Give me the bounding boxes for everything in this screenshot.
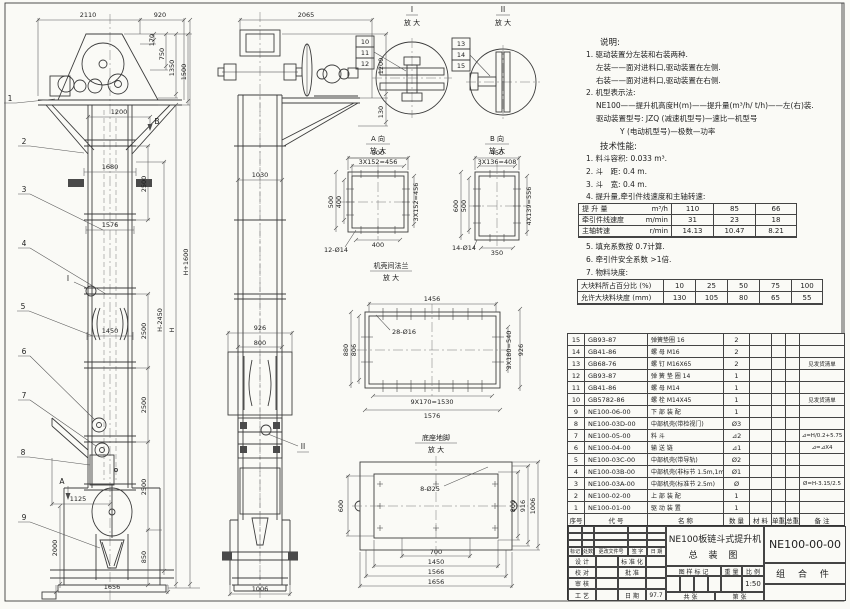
bom-code: NE100-03C-00 xyxy=(585,454,648,466)
detail-a-dim-400-left: 400 xyxy=(335,196,343,208)
side-dimensions: 2065 1200 130 1030 926 800 II 1006 xyxy=(226,11,388,596)
bom-unit-weight xyxy=(772,430,786,442)
front-dim-h: H xyxy=(168,327,176,332)
front-dim-170: 170 xyxy=(148,34,156,46)
bom-name: 中部机壳(非标节 1.5m,1m) xyxy=(648,466,724,478)
detail-b-dim-350: 350 xyxy=(491,249,503,257)
bom-unit-weight xyxy=(772,394,786,406)
bom-material xyxy=(750,346,772,358)
detail-ii-refs: 13 14 15 xyxy=(452,38,490,76)
bom-seq: 6 xyxy=(568,442,585,454)
note-line: 1. 驱动装置分左装和右装两种. xyxy=(586,49,844,62)
bom-total-weight xyxy=(786,418,800,430)
scale-value: 1:50 xyxy=(742,576,764,592)
bom-name: 中部机壳(带导轨) xyxy=(648,454,724,466)
bom-code: NE100-03B-00 xyxy=(585,466,648,478)
performance-line: 3. 斗 宽: 0.4 m. xyxy=(586,179,844,192)
side-dim-1006: 1006 xyxy=(252,585,269,593)
rev-cell xyxy=(594,540,628,547)
detail-flange-dim-1576: 1576 xyxy=(424,412,441,420)
front-dim-h-minus: H-2450 xyxy=(156,308,164,332)
bom-name: 螺 栓 M14X45 xyxy=(648,394,724,406)
weight-label: 重 量 xyxy=(721,566,742,576)
lump-value: 80 xyxy=(728,292,760,304)
bom-code: GB41-86 xyxy=(585,346,648,358)
detail-flange-dim-1456: 1456 xyxy=(424,295,441,303)
front-dim-1350: 1350 xyxy=(168,60,176,77)
lump-value: 65 xyxy=(760,292,792,304)
detail-flange-holes: 28-Ø16 xyxy=(392,328,416,336)
detail-base-dim-1450: 1450 xyxy=(428,558,445,566)
detail-a-dim-400-bottom: 400 xyxy=(372,241,384,249)
sig-process-label: 工 艺 xyxy=(568,589,596,601)
lift-value: 10.47 xyxy=(714,226,756,237)
bom-name: 中部机壳(标准节 2.5m) xyxy=(648,478,724,490)
detail-i-title: I xyxy=(411,5,413,14)
lift-label: 提 升 量 xyxy=(582,204,607,214)
front-dim-920: 920 xyxy=(154,11,166,19)
detail-a-dim-500-left: 500 xyxy=(327,196,335,208)
bom-remark: ⊿=H/0.2+5.75 xyxy=(800,430,845,442)
bom-total-weight xyxy=(786,346,800,358)
front-view-a-label: A xyxy=(59,477,65,486)
lump-value: 10 xyxy=(664,280,696,292)
bom-remark xyxy=(800,502,845,514)
stamp-cell xyxy=(680,576,694,592)
lift-value: 8.21 xyxy=(756,226,797,237)
drawing-sheet: 2110 920 170 750 1350 1500 1200 B 1680 1… xyxy=(0,0,850,609)
sig-cell xyxy=(596,578,618,589)
bom-remark xyxy=(800,490,845,502)
bom-qty: Ø xyxy=(724,478,750,490)
detail-a-title: A 向 xyxy=(371,134,385,143)
performance-block-2: 5. 填充系数按 0.7计算. 6. 牵引件安全系数 >1倍. 7. 物料块度: xyxy=(586,241,844,279)
bom-name: 料 斗 xyxy=(648,430,724,442)
detail-b-dim-556: 4X139=556 xyxy=(525,187,533,226)
bom-unit-weight xyxy=(772,478,786,490)
drawing-title-line2: 总 装 图 xyxy=(689,548,742,561)
sig-date-value: 97.7 xyxy=(646,589,666,601)
bom-unit-weight xyxy=(772,334,786,346)
bom-material xyxy=(750,334,772,346)
bom-remark: 见发货清单 xyxy=(800,394,845,406)
lift-capacity-table: 提 升 量 m³/h 110 85 66 牵引件线速度 m/min 31 23 … xyxy=(578,203,797,238)
rev-cell xyxy=(582,526,594,533)
sig-cell xyxy=(596,567,618,578)
bom-material xyxy=(750,382,772,394)
bom-name: 螺 钉 M16X65 xyxy=(648,358,724,370)
drawing-number: NE100-00-00 xyxy=(764,526,846,563)
bom-qty: 1 xyxy=(724,394,750,406)
performance-block: 技术性能: 1. 料斗容积: 0.033 m³. 2. 斗 距: 0.4 m. … xyxy=(586,140,844,204)
bom-remark: 见发货清单 xyxy=(800,358,845,370)
bom-name: 上 部 装 配 xyxy=(648,490,724,502)
bom-code: NE100-05-00 xyxy=(585,430,648,442)
drawing-title-line1: NE100板链斗式提升机 xyxy=(669,532,762,545)
front-dim-1576: 1576 xyxy=(102,221,119,229)
sig-design-label: 设 计 xyxy=(568,556,596,567)
balloon-9: 9 xyxy=(22,513,27,522)
sig-audit-label: 审 核 xyxy=(568,578,596,589)
detail-a-holes: 12-Ø14 xyxy=(324,246,348,254)
scale-label: 比 例 xyxy=(742,566,764,576)
detail-flange-dim-1530: 9X170=1530 xyxy=(411,398,454,406)
sig-cell xyxy=(646,556,666,567)
bom-seq: 7 xyxy=(568,430,585,442)
bom-remark xyxy=(800,454,845,466)
bom-seq: 3 xyxy=(568,478,585,490)
lift-value: 23 xyxy=(714,215,756,226)
bom-code: GB5782-86 xyxy=(585,394,648,406)
bom-seq: 9 xyxy=(568,406,585,418)
bom-remark xyxy=(800,346,845,358)
front-dim-1680: 1680 xyxy=(102,163,119,171)
bom-unit-weight xyxy=(772,490,786,502)
bom-remark xyxy=(800,370,845,382)
detail-b-dim-408: 3X136=408 xyxy=(478,158,517,166)
lift-value: 66 xyxy=(756,204,797,215)
detail-flange-dim-880: 880 xyxy=(342,344,350,356)
front-dim-1450: 1450 xyxy=(102,327,119,335)
balloon-2: 2 xyxy=(22,137,27,146)
rev-cell xyxy=(568,526,582,533)
rev-col-docno: 更改文件号 xyxy=(594,547,628,556)
bom-name: 输 送 链 xyxy=(648,442,724,454)
bom-remark xyxy=(800,334,845,346)
front-dim-1500: 1500 xyxy=(180,64,188,81)
bom-code: GB93-87 xyxy=(585,370,648,382)
rev-cell xyxy=(647,526,666,533)
lump-value: 25 xyxy=(696,280,728,292)
side-dim-800: 800 xyxy=(254,339,266,347)
detail-ii-title: II xyxy=(501,5,505,14)
bom-total-weight xyxy=(786,370,800,382)
front-dim-2500-1: 2500 xyxy=(140,176,148,193)
note-line: Y (电动机型号)—极数—功率 xyxy=(586,126,844,139)
side-dim-130: 130 xyxy=(377,106,385,118)
bom-remark xyxy=(800,418,845,430)
front-dim-1656: 1656 xyxy=(104,583,121,591)
bom-seq: 14 xyxy=(568,346,585,358)
sig-cell xyxy=(646,578,666,589)
bom-material xyxy=(750,454,772,466)
stamp-cell xyxy=(694,576,708,592)
bom-qty: 1 xyxy=(724,502,750,514)
ref-13: 13 xyxy=(457,40,465,48)
bom-total-weight xyxy=(786,358,800,370)
detail-b-dim-600: 600 xyxy=(452,200,460,212)
bom-material xyxy=(750,502,772,514)
bom-remark xyxy=(800,406,845,418)
balloon-8: 8 xyxy=(21,448,26,457)
bom-seq: 4 xyxy=(568,466,585,478)
lump-value: 100 xyxy=(792,280,823,292)
empty-cell xyxy=(764,584,846,601)
bom-total-weight xyxy=(786,442,800,454)
side-elevation-view: 2065 1200 130 1030 926 800 II 1006 xyxy=(218,11,388,600)
detail-b-view: B 向 放 大 450 3X136=408 600 500 4X139=556 … xyxy=(452,134,533,257)
detail-b-dim-450: 450 xyxy=(491,149,503,157)
sig-cell xyxy=(596,556,618,567)
lift-label: 牵引件线速度 xyxy=(582,215,624,225)
bom-code: NE100-02-00 xyxy=(585,490,648,502)
lump-value: 130 xyxy=(664,292,696,304)
lift-unit: m³/h xyxy=(652,205,668,213)
performance-line: 1. 料斗容积: 0.033 m³. xyxy=(586,153,844,166)
sig-date-label: 日 期 xyxy=(618,589,646,601)
ref-11: 11 xyxy=(361,49,369,57)
front-dimensions: 2110 920 170 750 1350 1500 1200 B 1680 1… xyxy=(36,11,200,594)
bom-seq: 13 xyxy=(568,358,585,370)
weight-value xyxy=(721,576,742,592)
balloon-1: 1 xyxy=(8,94,13,103)
bom-total-weight xyxy=(786,406,800,418)
detail-a-view: A 向 放 大 500 3X152=456 500 400 3X152=456 … xyxy=(324,134,420,254)
bom-name: 中部机壳(带检视门) xyxy=(648,418,724,430)
bom-name: 螺 母 M14 xyxy=(648,382,724,394)
bom-material xyxy=(750,478,772,490)
bom-total-weight xyxy=(786,490,800,502)
front-dim-1125: 1125 xyxy=(70,495,87,503)
detail-a-dim-500-top: 500 xyxy=(372,149,384,157)
bom-material xyxy=(750,418,772,430)
bom-unit-weight xyxy=(772,418,786,430)
bom-seq: 15 xyxy=(568,334,585,346)
bom-material xyxy=(750,394,772,406)
front-dim-1200: 1200 xyxy=(111,108,128,116)
rev-cell xyxy=(647,533,666,540)
side-dim-1030: 1030 xyxy=(252,171,269,179)
sig-check-label: 校 对 xyxy=(568,567,596,578)
bom-unit-weight xyxy=(772,382,786,394)
side-detail-ii-ref: II xyxy=(301,442,305,451)
performance-line: 7. 物料块度: xyxy=(586,267,844,280)
rev-col-count: 处数 xyxy=(582,547,594,556)
detail-base-zoom-label: 放 大 xyxy=(428,445,444,454)
front-view-b-label: B xyxy=(154,117,159,126)
balloon-5: 5 xyxy=(21,302,26,311)
rev-cell xyxy=(628,533,647,540)
bom-total-weight xyxy=(786,394,800,406)
drawing-title: NE100板链斗式提升机 总 装 图 xyxy=(666,526,764,566)
bom-name: 驱 动 装 置 xyxy=(648,502,724,514)
bom-remark xyxy=(800,466,845,478)
balloon-6: 6 xyxy=(22,347,27,356)
rev-cell xyxy=(594,526,628,533)
note-line: 右装——面对进料口,驱动装置在右侧. xyxy=(586,75,844,88)
note-line: 2. 机型表示法: xyxy=(586,87,844,100)
bom-qty: Ø3 xyxy=(724,418,750,430)
notes-block: 说明: 1. 驱动装置分左装和右装两种. 左装——面对进料口,驱动装置在左侧. … xyxy=(586,36,844,139)
bom-code: NE100-03A-00 xyxy=(585,478,648,490)
ref-12: 12 xyxy=(361,60,369,68)
rev-cell xyxy=(568,540,582,547)
bom-material xyxy=(750,370,772,382)
ref-15: 15 xyxy=(457,62,465,70)
rev-col-mark: 标记 xyxy=(568,547,582,556)
detail-flange-zoom-label: 放 大 xyxy=(383,273,399,282)
bom-total-weight xyxy=(786,334,800,346)
notes-heading: 说明: xyxy=(586,36,844,48)
detail-ii-zoom-label: 放 大 xyxy=(495,18,511,27)
bom-total-weight xyxy=(786,430,800,442)
detail-base-title: 底座地脚 xyxy=(422,433,450,442)
note-line: 驱动装置型号: JZQ (减速机型号)—速比—机型号 xyxy=(586,113,844,126)
sig-cell xyxy=(618,578,646,589)
front-detail-i-ref: I xyxy=(67,274,69,283)
detail-b-holes: 14-Ø14 xyxy=(452,244,476,252)
lift-value: 14.13 xyxy=(672,226,714,237)
lift-unit: m/min xyxy=(646,216,668,224)
bom-qty: 1 xyxy=(724,490,750,502)
detail-base-dim-1656: 1656 xyxy=(428,578,445,586)
note-line: NE100——提升机高度H(m)——提升量(m³/h/ t/h)——左(右)装. xyxy=(586,100,844,113)
bom-unit-weight xyxy=(772,358,786,370)
front-dim-2500-3: 2500 xyxy=(140,397,148,414)
lump-value: 55 xyxy=(792,292,823,304)
detail-base-dim-800: 800 xyxy=(509,500,517,512)
bom-total-weight xyxy=(786,454,800,466)
bom-qty: 1 xyxy=(724,370,750,382)
bom-seq: 5 xyxy=(568,454,585,466)
lift-value: 110 xyxy=(672,204,714,215)
lump-size-table: 大块料所占百分比 (%) 10 25 50 75 100 允许大块料块度 (mm… xyxy=(577,279,823,305)
front-dim-850: 850 xyxy=(140,551,148,563)
bom-code: GB41-86 xyxy=(585,382,648,394)
bom-qty: 1 xyxy=(724,382,750,394)
sig-cell xyxy=(596,589,618,601)
bom-name: 弹簧垫圈 16 xyxy=(648,334,724,346)
front-dim-2500-2: 2500 xyxy=(140,323,148,340)
detail-flange-dim-926: 926 xyxy=(517,344,525,356)
lift-value: 85 xyxy=(714,204,756,215)
bom-qty: ⊿2 xyxy=(724,430,750,442)
detail-flange-view: 机壳间法兰 放 大 1456 28-Ø16 880 806 3X180=540 … xyxy=(342,261,525,420)
rev-cell xyxy=(628,526,647,533)
bom-material xyxy=(750,442,772,454)
ref-10: 10 xyxy=(361,38,369,46)
lump-value: 105 xyxy=(696,292,728,304)
bom-qty: Ø1 xyxy=(724,466,750,478)
bom-total-weight xyxy=(786,478,800,490)
stamp-cell xyxy=(666,576,680,592)
rev-cell xyxy=(568,533,582,540)
detail-flange-dim-806: 806 xyxy=(350,344,358,356)
bom-unit-weight xyxy=(772,466,786,478)
bom-material xyxy=(750,466,772,478)
bom-total-weight xyxy=(786,466,800,478)
bom-name: 螺 母 M16 xyxy=(648,346,724,358)
lift-value: 18 xyxy=(756,215,797,226)
sig-cell xyxy=(646,567,666,578)
bom-code: GB68-76 xyxy=(585,358,648,370)
rev-col-sign: 签 字 xyxy=(628,547,647,556)
performance-line: 2. 斗 距: 0.4 m. xyxy=(586,166,844,179)
detail-b-dim-500: 500 xyxy=(460,200,468,212)
performance-line: 6. 牵引件安全系数 >1倍. xyxy=(586,254,844,267)
front-dim-2000: 2000 xyxy=(51,540,59,557)
rev-cell xyxy=(647,540,666,547)
bom-remark: ⊿=⊿X4 xyxy=(800,442,845,454)
detail-ii-view: II 放 大 13 14 15 xyxy=(452,5,540,119)
detail-i-zoom-label: 放 大 xyxy=(404,18,420,27)
detail-flange-dim-540: 3X180=540 xyxy=(505,331,513,370)
performance-line: 5. 填充系数按 0.7计算. xyxy=(586,241,844,254)
detail-b-title: B 向 xyxy=(490,134,504,143)
bom-material xyxy=(750,358,772,370)
bom-seq: 12 xyxy=(568,370,585,382)
parts-list-table: 15GB93-87弹簧垫圈 162 14GB41-86螺 母 M162 13GB… xyxy=(567,333,845,527)
assembly-category: 组 合 件 xyxy=(764,563,846,584)
rev-cell xyxy=(582,533,594,540)
front-elevation-view: 2110 920 170 750 1350 1500 1200 B 1680 1… xyxy=(4,11,200,600)
sheet-number: 第 张 xyxy=(715,592,764,601)
bom-material xyxy=(750,490,772,502)
balloon-7: 7 xyxy=(22,391,27,400)
lift-unit: r/min xyxy=(650,227,668,235)
bom-name: 弹 簧 垫 圈 14 xyxy=(648,370,724,382)
bom-code: NE100-06-00 xyxy=(585,406,648,418)
lift-row-label: 牵引件线速度 m/min xyxy=(579,215,672,226)
front-dim-h-plus: H+1600 xyxy=(182,249,190,276)
balloon-3: 3 xyxy=(22,185,27,194)
note-line: 左装——面对进料口,驱动装置在左侧. xyxy=(586,62,844,75)
detail-base-dim-916: 916 xyxy=(519,500,527,512)
total-sheets: 共 张 xyxy=(666,592,715,601)
performance-heading: 技术性能: xyxy=(586,140,844,152)
detail-base-holes: 8-Ø25 xyxy=(420,485,440,493)
bom-qty: 2 xyxy=(724,358,750,370)
title-block: 标记 处数 更改文件号 签 字 日 期 设 计 标 准 化 校 对 批 准 审 … xyxy=(567,525,845,600)
side-dim-926: 926 xyxy=(254,324,266,332)
lump-label: 大块料所占百分比 (%) xyxy=(578,280,664,292)
sig-standard-label: 标 准 化 xyxy=(618,556,646,567)
bom-material xyxy=(750,430,772,442)
bom-code: GB93-87 xyxy=(585,334,648,346)
detail-base-dim-1566: 1566 xyxy=(428,568,445,576)
bom-remark xyxy=(800,382,845,394)
rev-col-date: 日 期 xyxy=(647,547,666,556)
bom-total-weight xyxy=(786,382,800,394)
bom-qty: Ø2 xyxy=(724,454,750,466)
lift-row-label: 主轴转速 r/min xyxy=(579,226,672,237)
balloon-4: 4 xyxy=(22,239,27,248)
front-dim-750: 750 xyxy=(158,48,166,60)
bom-seq: 8 xyxy=(568,418,585,430)
front-balloons: 1 2 3 4 5 6 7 8 9 xyxy=(4,94,106,548)
bom-seq: 10 xyxy=(568,394,585,406)
rev-cell xyxy=(594,533,628,540)
bom-unit-weight xyxy=(772,454,786,466)
bom-qty: 2 xyxy=(724,346,750,358)
bom-seq: 2 xyxy=(568,490,585,502)
bom-unit-weight xyxy=(772,346,786,358)
front-dim-2110: 2110 xyxy=(80,11,97,19)
front-dim-2500-4: 2500 xyxy=(140,479,148,496)
detail-a-dim-456-top: 3X152=456 xyxy=(359,158,398,166)
lift-row-label: 提 升 量 m³/h xyxy=(579,204,672,215)
lump-value: 75 xyxy=(760,280,792,292)
detail-base-dim-700: 700 xyxy=(430,548,442,556)
stamp-label: 图 样 标 记 xyxy=(666,566,721,576)
bom-remark: Ø=H-3.15/2.5 xyxy=(800,478,845,490)
lift-label: 主轴转速 xyxy=(582,226,610,236)
rev-cell xyxy=(582,540,594,547)
detail-base-dim-1006: 1006 xyxy=(529,498,537,515)
ref-14: 14 xyxy=(457,51,465,59)
bom-qty: 2 xyxy=(724,334,750,346)
lump-value: 50 xyxy=(728,280,760,292)
